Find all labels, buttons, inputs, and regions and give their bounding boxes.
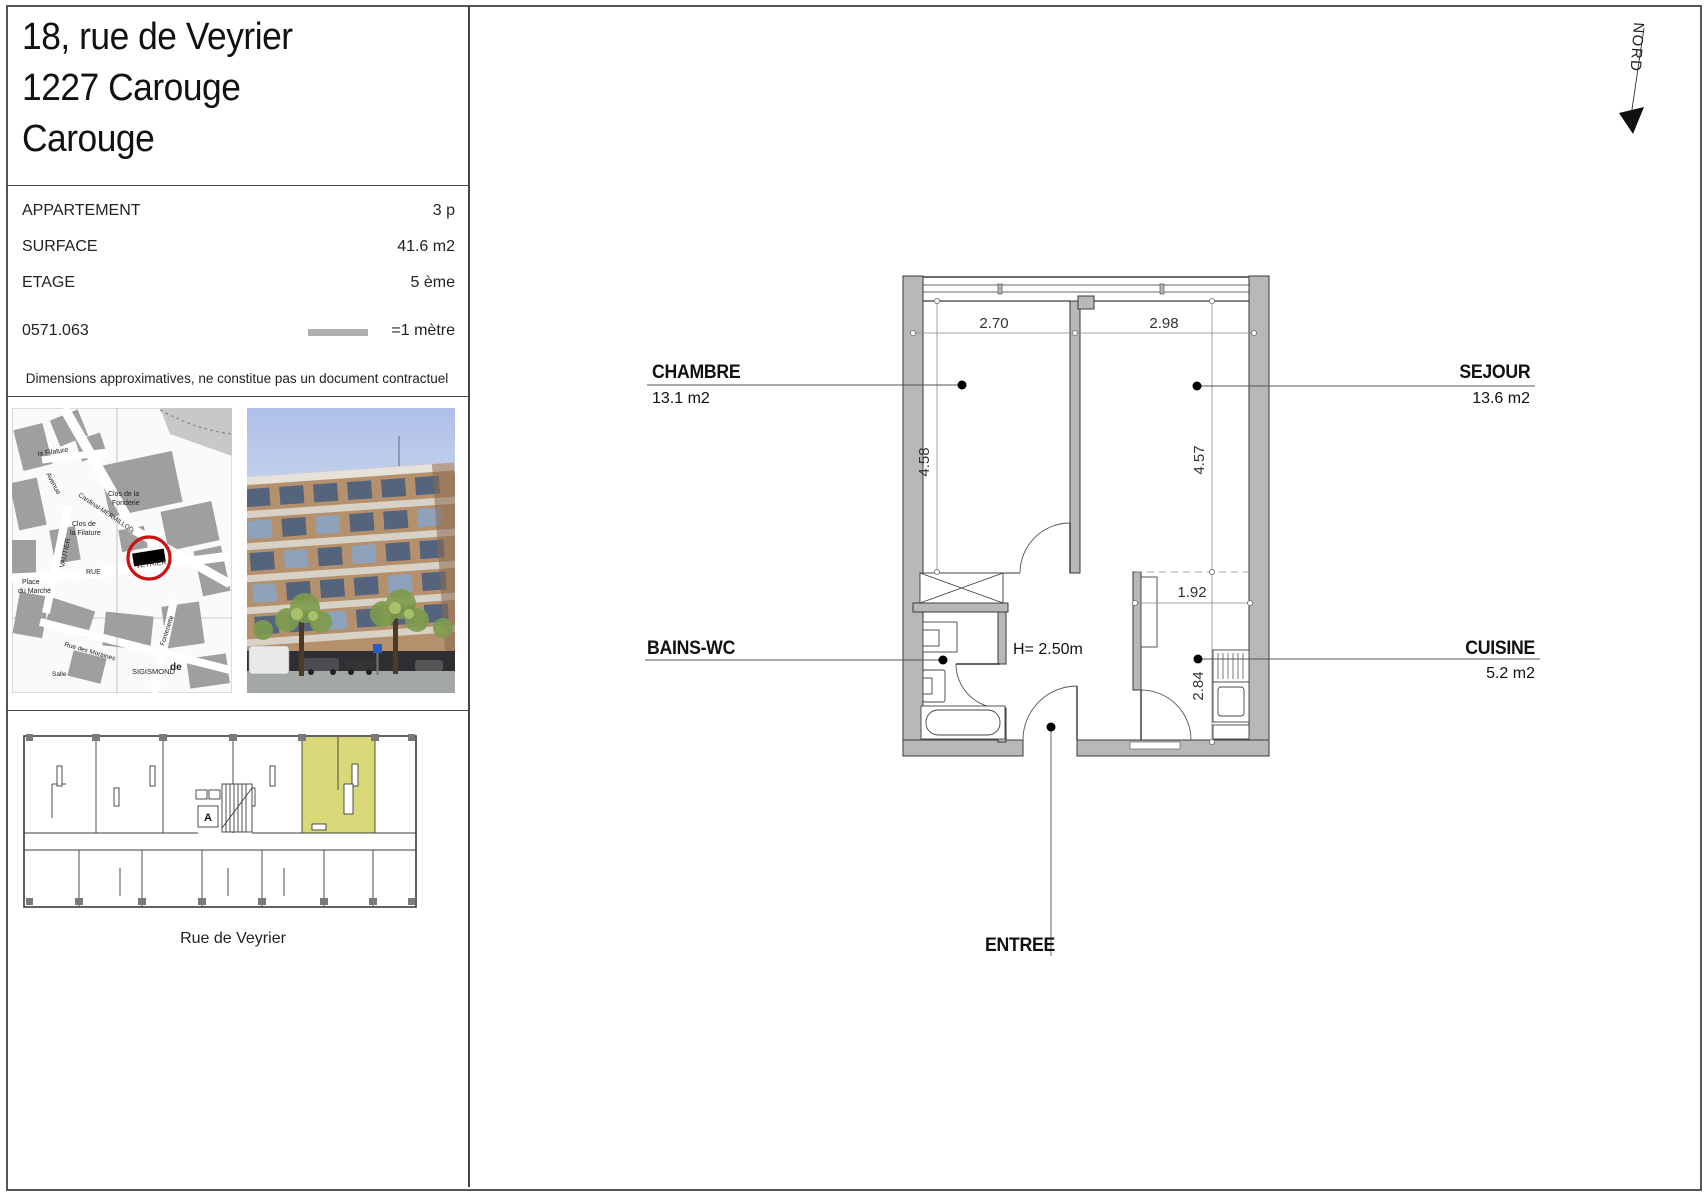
dim-chambre-depth: 4.58	[916, 447, 933, 476]
room-label-sejour: SEJOUR	[1380, 362, 1530, 384]
room-label-chambre: CHAMBRE	[652, 362, 747, 384]
room-area-chambre: 13.1 m2	[652, 390, 710, 408]
dim-cuisine-depth: 2.84	[1190, 671, 1207, 700]
dim-cuisine-width: 1.92	[1177, 584, 1206, 601]
room-area-cuisine: 5.2 m2	[1385, 665, 1535, 683]
room-label-bains: BAINS-WC	[647, 638, 742, 660]
bathroom-fixtures	[921, 622, 1005, 739]
door-chambre	[1020, 523, 1070, 573]
wardrobe	[920, 573, 1003, 603]
door-bains	[956, 664, 1000, 708]
plan-sheet: 18, rue de Veyrier 1227 Carouge Carouge …	[0, 0, 1705, 1197]
dim-sejour-depth: 4.57	[1191, 445, 1208, 474]
dim-chambre-width: 2.70	[979, 315, 1008, 332]
ceiling-height-label: H= 2.50m	[1013, 641, 1083, 659]
apartment-floor-plan: NORD	[0, 0, 1705, 1197]
room-label-entree: ENTREE	[985, 935, 1060, 957]
dim-sejour-width: 2.98	[1149, 315, 1178, 332]
door-cuisine	[1141, 690, 1191, 740]
room-label-cuisine: CUISINE	[1385, 638, 1535, 660]
room-area-sejour: 13.6 m2	[1380, 390, 1530, 408]
north-arrow: NORD	[1619, 22, 1647, 134]
